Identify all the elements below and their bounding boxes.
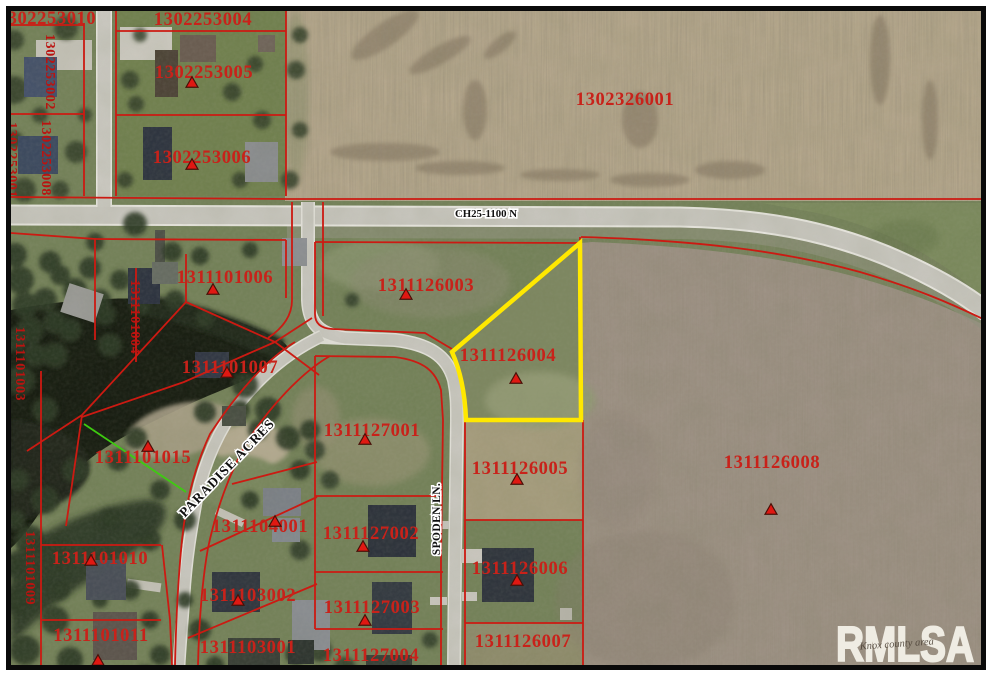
svg-text:1302253010: 1302253010 <box>0 9 96 29</box>
svg-text:1311103002: 1311103002 <box>200 586 296 606</box>
svg-text:1311101010: 1311101010 <box>52 549 148 569</box>
svg-text:1302253006: 1302253006 <box>153 148 252 168</box>
svg-text:1302253002: 1302253002 <box>42 34 57 110</box>
svg-text:1311127003: 1311127003 <box>324 598 420 618</box>
svg-text:1311126008: 1311126008 <box>724 453 820 473</box>
svg-text:1311126004: 1311126004 <box>460 346 556 366</box>
svg-text:1311103001: 1311103001 <box>200 638 296 658</box>
svg-text:1311101004: 1311101004 <box>127 280 142 354</box>
svg-text:1311101009: 1311101009 <box>22 531 37 605</box>
svg-text:1311127004: 1311127004 <box>323 646 419 666</box>
svg-text:1311126007: 1311126007 <box>475 632 571 652</box>
svg-text:CH25-1100 N: CH25-1100 N <box>455 208 517 220</box>
svg-text:1311101003: 1311101003 <box>12 327 27 401</box>
svg-text:1311127002: 1311127002 <box>323 524 419 544</box>
svg-text:1311126005: 1311126005 <box>472 459 568 479</box>
svg-text:1302253004: 1302253004 <box>154 10 253 30</box>
svg-text:1311126003: 1311126003 <box>378 276 474 296</box>
svg-text:1311101011: 1311101011 <box>53 626 148 646</box>
svg-text:1302253005: 1302253005 <box>155 63 254 83</box>
svg-text:1311126006: 1311126006 <box>472 559 568 579</box>
svg-text:1311101006: 1311101006 <box>177 268 273 288</box>
svg-text:1311127001: 1311127001 <box>324 421 420 441</box>
svg-text:1302326001: 1302326001 <box>576 90 675 110</box>
svg-text:SPODEN LN.: SPODEN LN. <box>431 483 443 555</box>
svg-text:1302253008: 1302253008 <box>38 120 53 196</box>
svg-text:1311104001: 1311104001 <box>212 517 308 537</box>
